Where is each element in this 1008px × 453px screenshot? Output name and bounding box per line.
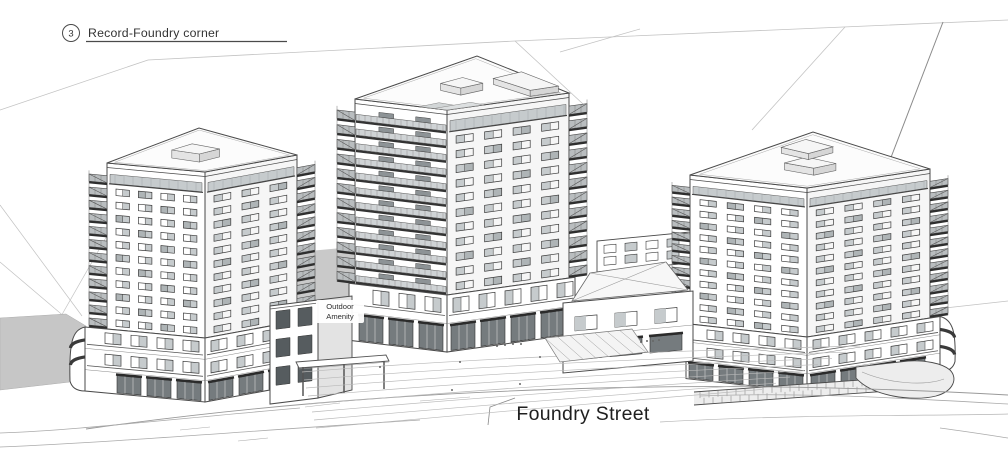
tower-center	[337, 56, 587, 352]
balcony-stack-right	[930, 175, 948, 318]
view-reference-number: 3	[68, 29, 73, 40]
amenity-label: Outdoor Amenity	[316, 300, 364, 323]
facade-right	[447, 93, 569, 295]
architectural-rendering: 3 Record-Foundry corner Outdoor Amenity …	[0, 0, 1008, 453]
balcony-stack-left	[89, 170, 107, 329]
balcony-stack-right	[569, 99, 587, 278]
facade-left	[107, 163, 205, 338]
amenity-label-line1: Outdoor	[326, 302, 354, 311]
street-label: Foundry Street	[516, 403, 649, 425]
generated-scene	[0, 20, 1008, 447]
facade-right	[807, 169, 930, 337]
facade-left	[355, 99, 447, 295]
view-reference-title: Record-Foundry corner	[88, 26, 219, 40]
facade-left	[690, 175, 807, 337]
amenity-label-line2: Amenity	[326, 312, 354, 321]
rendering-svg: 3 Record-Foundry corner Outdoor Amenity …	[0, 0, 1008, 453]
